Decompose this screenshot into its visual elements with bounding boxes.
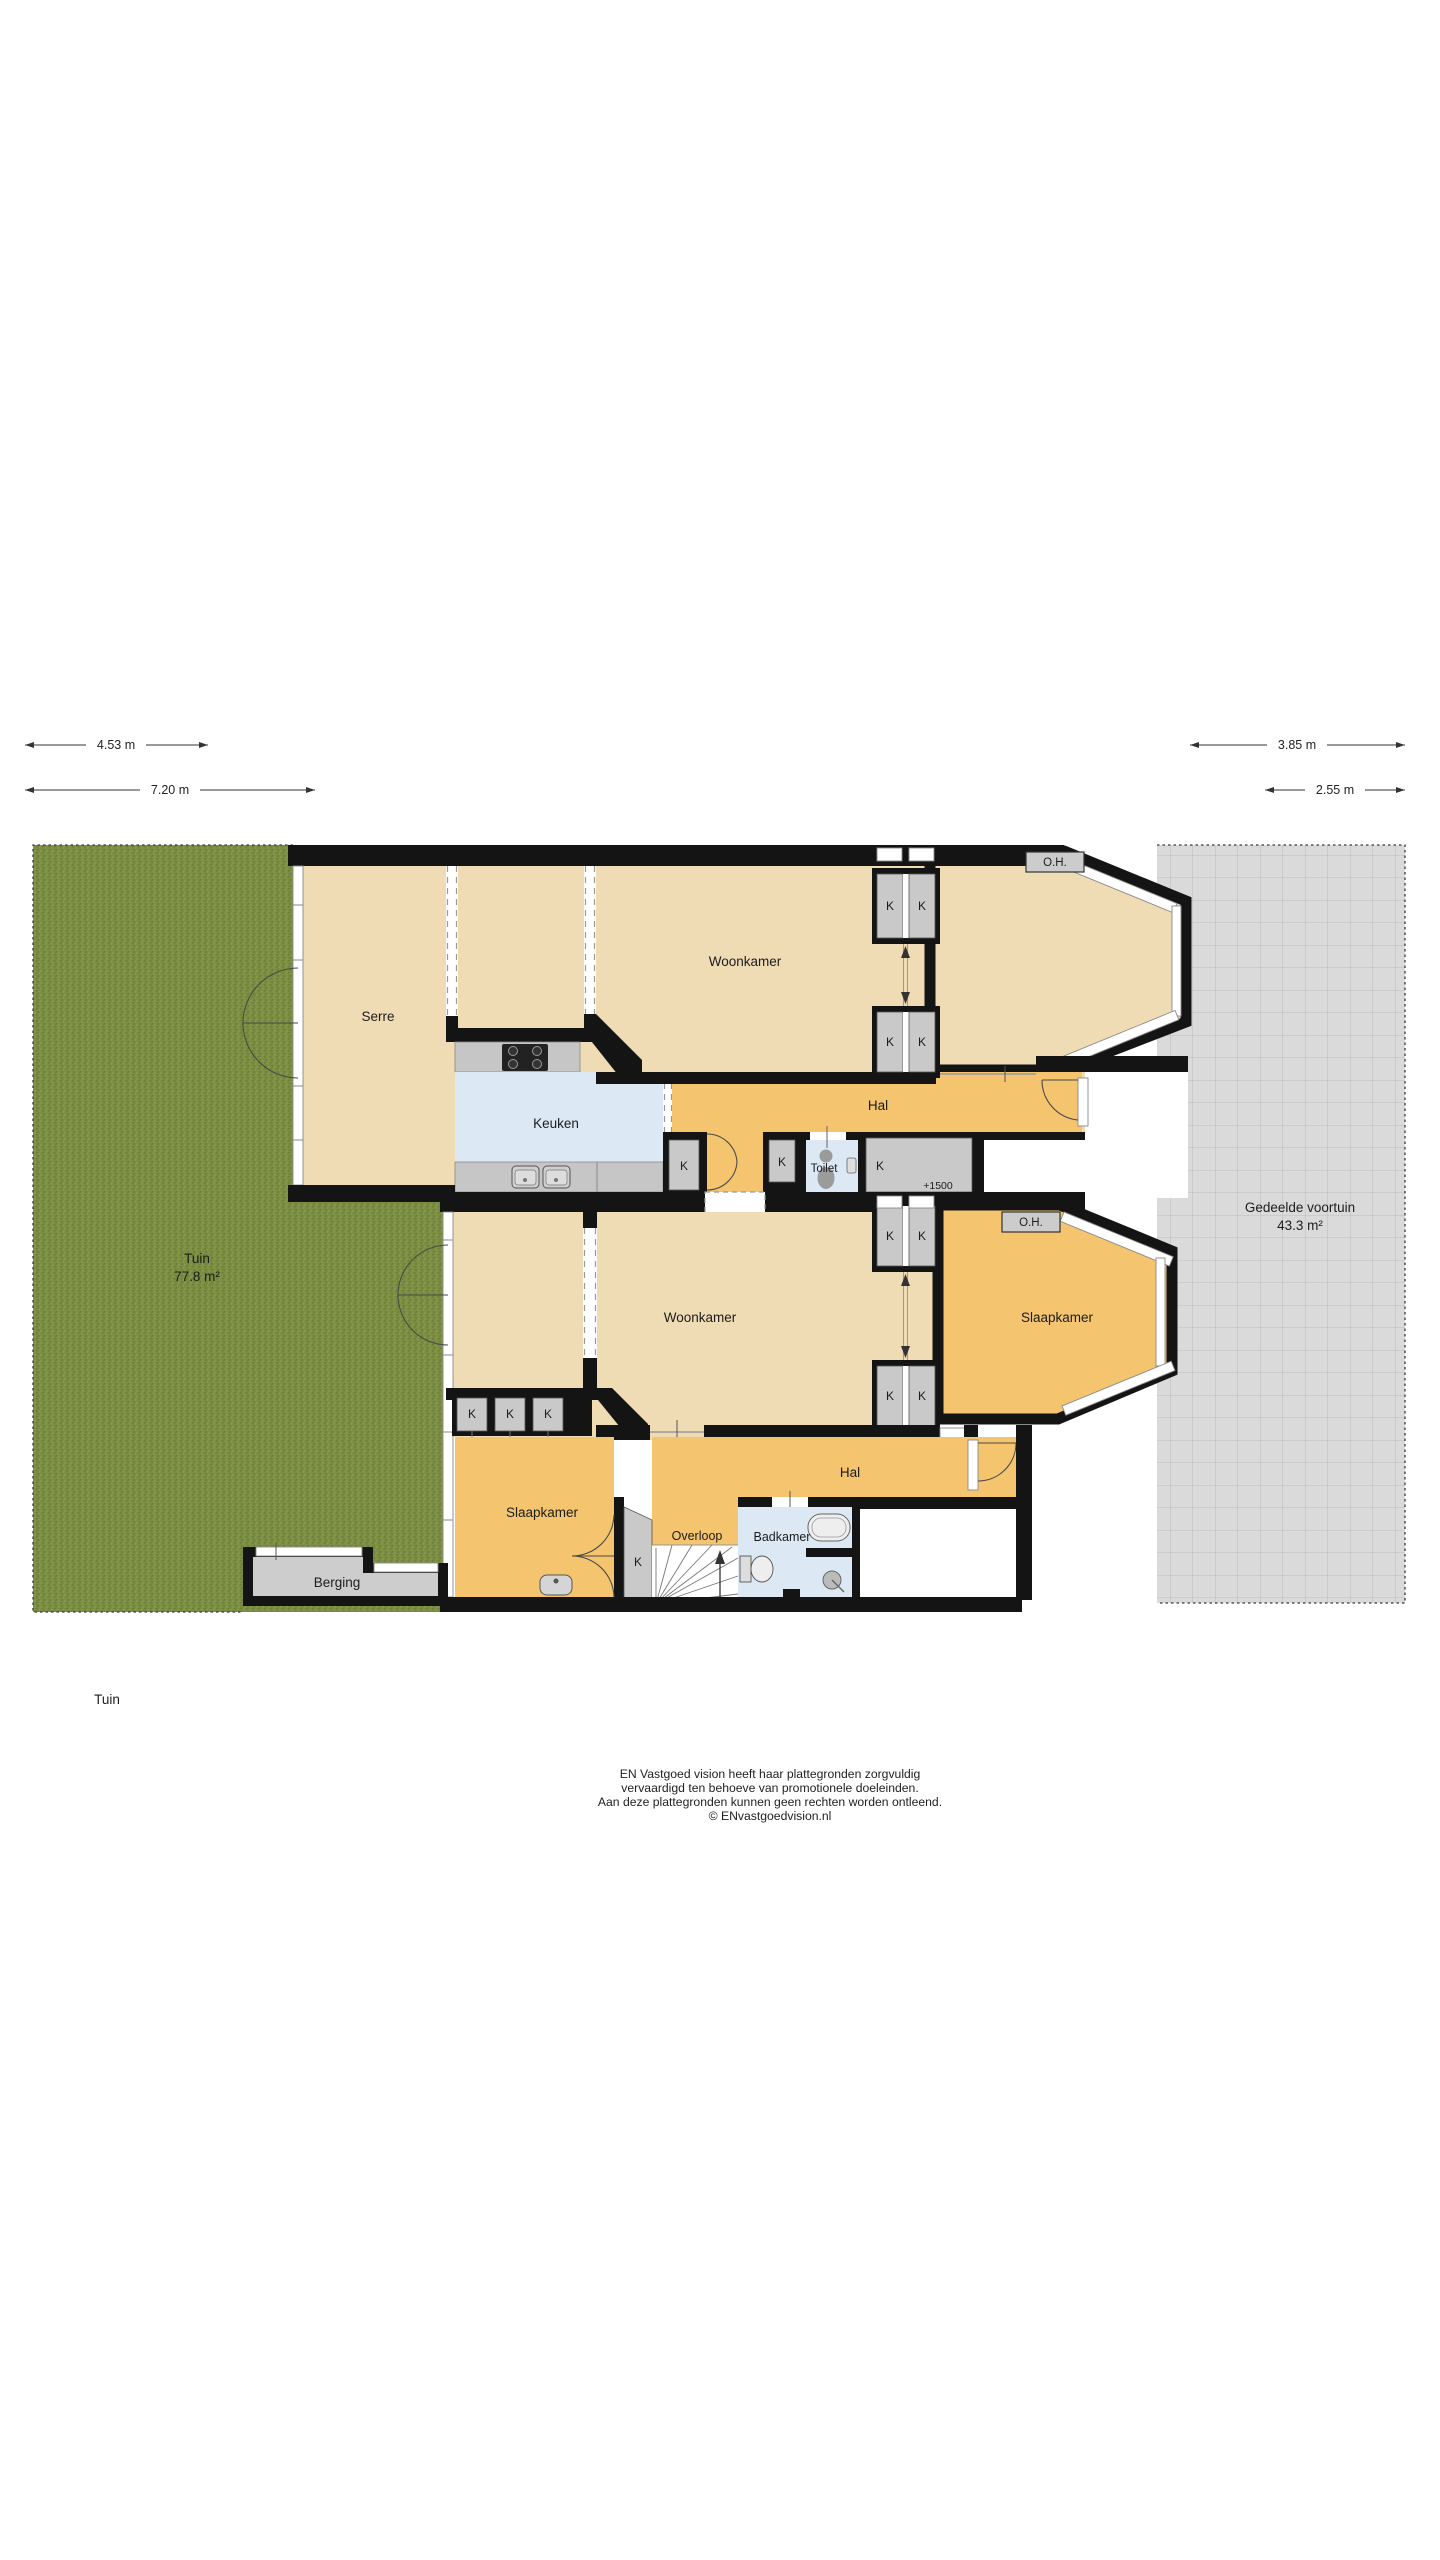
svg-text:EN Vastgoed vision heeft haar: EN Vastgoed vision heeft haar plattegron… [620,1767,921,1781]
room-label-woonkamer-upper: Woonkamer [709,954,782,969]
level-label: +1500 [923,1180,953,1192]
storage-room [860,1509,1016,1597]
room-label-woonkamer-lower: Woonkamer [664,1310,737,1325]
lower-porch [1032,1437,1157,1600]
svg-text:vervaardigd ten behoeve van pr: vervaardigd ten behoeve van promotionele… [621,1781,918,1795]
dim-453: 4.53 m [97,738,135,752]
room-label-slaapkamer-left: Slaapkamer [506,1505,579,1520]
footer-disclaimer: EN Vastgoed vision heeft haar plattegron… [598,1767,942,1823]
stove-icon [502,1044,548,1071]
upper-porch [1085,1070,1188,1198]
floorplan-drawing: 4.53 m 7.20 m 3.85 m 2.55 m [0,0,1440,2560]
vestibule-dashed-passage [705,1192,765,1214]
svg-text:K: K [918,1229,926,1243]
dim-720: 7.20 m [151,783,189,797]
svg-text:K: K [876,1159,884,1173]
floorplan-page: 4.53 m 7.20 m 3.85 m 2.55 m [0,0,1440,2560]
room-label-berging: Berging [314,1575,361,1590]
room-label-toilet: Toilet [811,1163,839,1175]
plan-caption: Tuin [94,1692,120,1707]
bedroom-sink-icon [540,1575,572,1595]
room-label-serre: Serre [361,1009,394,1024]
voortuin-name-label: Gedeelde voortuin [1245,1200,1355,1215]
kitchen-counter-bottom [455,1162,663,1192]
svg-text:K: K [886,1389,894,1403]
svg-text:K: K [544,1407,552,1421]
toilet-icon [740,1556,773,1582]
garden-name-label: Tuin [184,1251,210,1266]
room-label-overloop: Overloop [672,1529,723,1543]
bay-window-lower-2 [1156,1258,1165,1366]
svg-text:K: K [886,1035,894,1049]
svg-text:K: K [680,1159,688,1173]
svg-text:K: K [506,1407,514,1421]
svg-text:K: K [918,899,926,913]
room-label-keuken: Keuken [533,1116,579,1131]
svg-text:K: K [886,899,894,913]
dimension-lines: 4.53 m 7.20 m 3.85 m 2.55 m [25,735,1405,799]
dim-385: 3.85 m [1278,738,1316,752]
room-label-slaapkamer-right: Slaapkamer [1021,1310,1094,1325]
garden-area-label: 77.8 m² [174,1269,220,1284]
svg-text:K: K [918,1035,926,1049]
lower-apartment: O.H. K K K [398,1196,1175,1612]
svg-text:K: K [778,1155,786,1169]
dim-255: 2.55 m [1316,783,1354,797]
svg-text:© ENvastgoedvision.nl: © ENvastgoedvision.nl [709,1809,832,1823]
lower-hal-floor [652,1437,1016,1497]
svg-text:K: K [634,1555,642,1569]
svg-text:Aan deze plattegronden kunnen: Aan deze plattegronden kunnen geen recht… [598,1795,942,1809]
room-label-hal-lower: Hal [840,1465,860,1480]
svg-text:K: K [468,1407,476,1421]
oh-label-lower: O.H. [1019,1217,1043,1229]
svg-text:K: K [886,1229,894,1243]
kitchen-counter-top [455,1042,580,1072]
svg-text:K: K [918,1389,926,1403]
oh-label-upper: O.H. [1043,857,1067,869]
upper-bay-room [930,851,1186,1070]
bathtub-icon [808,1514,850,1541]
room-label-hal-upper: Hal [868,1098,888,1113]
room-label-badkamer: Badkamer [754,1530,811,1544]
upper-service-strip: K K Toilet K +1500 [663,1126,1085,1194]
badkamer-room [738,1507,852,1599]
upper-apartment: K K K K O.H. K K [243,845,1188,1198]
bay-window-upper-2 [1172,906,1181,1016]
voortuin-area-label: 43.3 m² [1277,1218,1323,1233]
toilet-sink-icon [847,1158,856,1173]
